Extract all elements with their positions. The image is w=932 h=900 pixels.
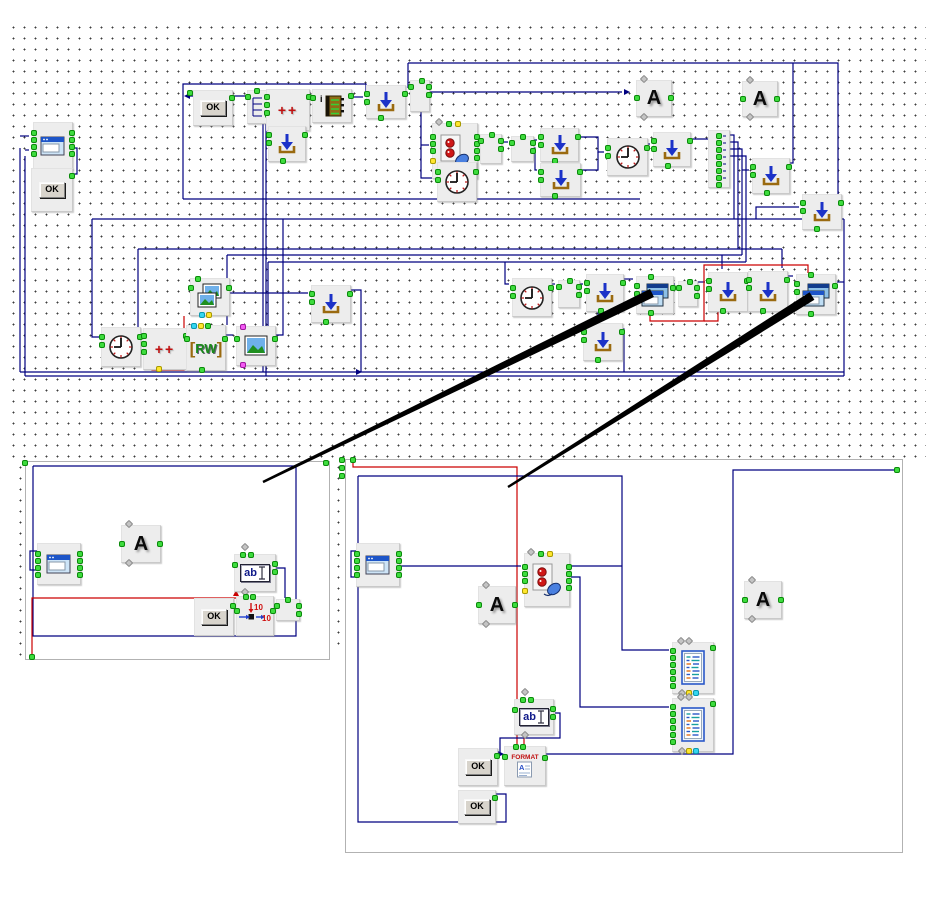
connection-port[interactable]: [716, 161, 722, 167]
connection-port[interactable]: [760, 308, 766, 314]
image-node[interactable]: [236, 326, 276, 366]
connection-port[interactable]: [670, 739, 676, 745]
connection-port[interactable]: [240, 552, 246, 558]
connection-port[interactable]: [243, 594, 249, 600]
wire-segment: [704, 311, 718, 321]
connection-port[interactable]: [323, 319, 329, 325]
connection-port[interactable]: [99, 342, 105, 348]
connection-port[interactable]: [676, 285, 682, 291]
connection-port[interactable]: [716, 147, 722, 153]
connection-port[interactable]: [245, 94, 251, 100]
wire-segment: [577, 137, 604, 152]
wire-segment: [579, 152, 598, 170]
sd2-letter-a-node-1[interactable]: A: [478, 586, 516, 624]
connection-port[interactable]: [686, 748, 692, 754]
svg-text:10: 10: [262, 614, 271, 623]
ok-button[interactable]: OK: [39, 182, 65, 198]
connection-port[interactable]: [670, 648, 676, 654]
connection-port[interactable]: [396, 572, 402, 578]
connection-port[interactable]: [419, 78, 425, 84]
window-icon: [39, 134, 67, 158]
connection-port[interactable]: [648, 310, 654, 316]
document-list-icon: [678, 706, 708, 744]
connection-port[interactable]: [99, 334, 105, 340]
connection-port[interactable]: [581, 329, 587, 335]
connection-port[interactable]: [530, 140, 536, 146]
clock-node-4[interactable]: [101, 327, 141, 367]
connection-port[interactable]: [694, 293, 700, 299]
connection-port[interactable]: [800, 200, 806, 206]
download-node-8[interactable]: [586, 274, 624, 312]
connection-port[interactable]: [348, 93, 354, 99]
connection-port[interactable]: [430, 141, 436, 147]
connection-port[interactable]: [226, 285, 232, 291]
connection-port[interactable]: [446, 121, 452, 127]
connection-port[interactable]: [302, 132, 308, 138]
sd2-textbox-node[interactable]: ab: [514, 699, 554, 735]
connection-port[interactable]: [264, 102, 270, 108]
connection-port[interactable]: [648, 274, 654, 280]
download-icon: [659, 137, 685, 163]
connection-port[interactable]: [687, 279, 693, 285]
letter-a-node-2[interactable]: A: [742, 81, 778, 117]
connection-port[interactable]: [430, 158, 436, 164]
connection-port[interactable]: [141, 341, 147, 347]
textbox-icon: ab: [519, 708, 549, 726]
increment-node-2[interactable]: ++: [143, 328, 187, 370]
connection-port[interactable]: [266, 140, 272, 146]
connection-port[interactable]: [266, 132, 272, 138]
connection-port[interactable]: [309, 299, 315, 305]
connection-port[interactable]: [31, 137, 37, 143]
connection-port[interactable]: [665, 163, 671, 169]
connection-port[interactable]: [687, 138, 693, 144]
connection-port[interactable]: [408, 84, 414, 90]
window-cascade-node-2[interactable]: [796, 274, 836, 315]
junction-node-4[interactable]: [511, 136, 534, 162]
connection-port[interactable]: [567, 278, 573, 284]
connection-port[interactable]: [69, 137, 75, 143]
connection-port[interactable]: [694, 285, 700, 291]
connection-port[interactable]: [502, 754, 508, 760]
download-node-6[interactable]: [752, 158, 790, 194]
connection-port[interactable]: [510, 285, 516, 291]
connection-port[interactable]: [35, 558, 41, 564]
connection-port[interactable]: [69, 130, 75, 136]
connection-port[interactable]: [141, 349, 147, 355]
connection-port[interactable]: [716, 133, 722, 139]
connection-port[interactable]: [229, 95, 235, 101]
connection-port[interactable]: [347, 291, 353, 297]
sd1-letter-a-node[interactable]: A: [121, 525, 161, 563]
connection-port[interactable]: [31, 151, 37, 157]
connection-port[interactable]: [435, 177, 441, 183]
connection-port[interactable]: [784, 277, 790, 283]
connection-port[interactable]: [396, 565, 402, 571]
connection-port[interactable]: [670, 662, 676, 668]
connection-port[interactable]: [378, 115, 384, 121]
sd2-event-node[interactable]: [524, 553, 570, 607]
move-resize-icon: 1010: [238, 601, 272, 631]
download-node-11[interactable]: [748, 271, 788, 312]
connection-port[interactable]: [547, 551, 553, 557]
connection-port[interactable]: [199, 312, 205, 318]
connection-port[interactable]: [156, 366, 162, 372]
connection-port[interactable]: [670, 655, 676, 661]
sd1-window-node[interactable]: [37, 543, 81, 585]
connection-port[interactable]: [234, 608, 240, 614]
connection-port[interactable]: [556, 284, 562, 290]
connection-port[interactable]: [296, 611, 302, 617]
connection-port[interactable]: [520, 744, 526, 750]
connection-port[interactable]: [786, 164, 792, 170]
connection-port[interactable]: [706, 278, 712, 284]
connection-port[interactable]: [512, 707, 518, 713]
download-node-7[interactable]: [802, 194, 842, 230]
connection-port[interactable]: [31, 130, 37, 136]
clock-icon: [106, 332, 136, 362]
connection-port[interactable]: [548, 285, 554, 291]
clock-icon: [517, 283, 547, 313]
connection-port[interactable]: [522, 564, 528, 570]
connection-port[interactable]: [272, 561, 278, 567]
connection-port[interactable]: [670, 732, 676, 738]
connection-port[interactable]: [430, 134, 436, 140]
connection-port[interactable]: [77, 572, 83, 578]
connection-port[interactable]: [742, 597, 748, 603]
connection-port[interactable]: [528, 697, 534, 703]
connection-port[interactable]: [566, 578, 572, 584]
sd2-ok-node-2[interactable]: OK: [458, 790, 496, 824]
wire-arrowhead: [624, 89, 630, 95]
connection-port[interactable]: [584, 280, 590, 286]
connection-port[interactable]: [538, 169, 544, 175]
connection-port[interactable]: [644, 145, 650, 151]
connection-port[interactable]: [309, 291, 315, 297]
connection-port[interactable]: [250, 594, 256, 600]
connection-port[interactable]: [402, 91, 408, 97]
download-icon: [590, 329, 616, 355]
connection-port[interactable]: [634, 291, 640, 297]
connection-port[interactable]: [750, 172, 756, 178]
connection-port[interactable]: [513, 744, 519, 750]
download-node-5[interactable]: [653, 132, 691, 167]
connection-port[interactable]: [832, 283, 838, 289]
connection-port[interactable]: [651, 146, 657, 152]
clock-node-1[interactable]: [437, 162, 477, 202]
ok-button[interactable]: OK: [464, 799, 490, 815]
connection-port[interactable]: [808, 311, 814, 317]
connection-port[interactable]: [520, 134, 526, 140]
connection-port[interactable]: [595, 357, 601, 363]
connection-port[interactable]: [716, 175, 722, 181]
connection-port[interactable]: [716, 154, 722, 160]
format-icon: FORMATA: [511, 754, 538, 779]
connection-port[interactable]: [199, 367, 205, 373]
connection-port[interactable]: [364, 91, 370, 97]
connection-port[interactable]: [716, 140, 722, 146]
connection-port[interactable]: [634, 283, 640, 289]
connection-port[interactable]: [77, 551, 83, 557]
connection-port[interactable]: [354, 565, 360, 571]
connection-port[interactable]: [581, 337, 587, 343]
sd2-doclist-node-1[interactable]: [672, 642, 714, 694]
connection-port[interactable]: [205, 323, 211, 329]
connection-port[interactable]: [455, 121, 461, 127]
connection-port[interactable]: [264, 94, 270, 100]
connection-port[interactable]: [354, 572, 360, 578]
connection-port[interactable]: [494, 753, 500, 759]
connection-port[interactable]: [69, 151, 75, 157]
junction-node-3[interactable]: [480, 134, 502, 164]
window-node-1[interactable]: [33, 122, 73, 170]
connection-port[interactable]: [794, 289, 800, 295]
connection-port[interactable]: [188, 285, 194, 291]
connection-port[interactable]: [248, 552, 254, 558]
download-node-2[interactable]: [366, 85, 406, 119]
connection-port[interactable]: [670, 683, 676, 689]
sd1-textbox-node[interactable]: ab: [234, 554, 276, 592]
connection-port[interactable]: [184, 336, 190, 342]
read-write-icon: [RW]: [190, 340, 223, 357]
junction-node-6[interactable]: [678, 281, 698, 307]
connection-port[interactable]: [234, 336, 240, 342]
listbox-icon: i: [319, 93, 345, 119]
connection-port[interactable]: [285, 597, 291, 603]
connection-port[interactable]: [716, 168, 722, 174]
connection-port[interactable]: [77, 565, 83, 571]
sd1-junction-node[interactable]: [276, 599, 300, 621]
connection-port[interactable]: [489, 132, 495, 138]
connection-port[interactable]: [232, 562, 238, 568]
connection-dot: [29, 654, 35, 660]
connection-port[interactable]: [498, 138, 504, 144]
letter-a-node-1[interactable]: A: [636, 80, 672, 117]
download-icon: [592, 280, 618, 306]
connection-port[interactable]: [550, 714, 556, 720]
connection-port[interactable]: [710, 701, 716, 707]
connection-port[interactable]: [670, 669, 676, 675]
connection-port[interactable]: [310, 95, 316, 101]
connection-port[interactable]: [396, 558, 402, 564]
connection-port[interactable]: [619, 329, 625, 335]
connection-port[interactable]: [195, 276, 201, 282]
listbox-node-1[interactable]: i: [312, 89, 352, 123]
junction-node-2[interactable]: [410, 80, 430, 112]
connection-port[interactable]: [538, 134, 544, 140]
connection-port[interactable]: [764, 190, 770, 196]
connection-port[interactable]: [605, 153, 611, 159]
ok-button[interactable]: OK: [465, 759, 491, 775]
sd2-ok-node-1[interactable]: OK: [458, 748, 498, 786]
connection-port[interactable]: [720, 308, 726, 314]
connection-port[interactable]: [605, 145, 611, 151]
connection-port[interactable]: [794, 281, 800, 287]
connection-port[interactable]: [512, 602, 518, 608]
image-icon: [242, 333, 270, 359]
connection-port[interactable]: [598, 308, 604, 314]
connection-port[interactable]: [670, 704, 676, 710]
connection-port[interactable]: [566, 585, 572, 591]
connection-port[interactable]: [800, 208, 806, 214]
clock-icon: [442, 167, 472, 197]
connection-port[interactable]: [426, 92, 432, 98]
connection-port[interactable]: [35, 572, 41, 578]
connection-port[interactable]: [668, 95, 674, 101]
ok-button[interactable]: OK: [200, 100, 226, 116]
connection-port[interactable]: [584, 288, 590, 294]
connection-port[interactable]: [670, 676, 676, 682]
junction-node-5[interactable]: [558, 280, 580, 308]
download-node-4[interactable]: [540, 163, 581, 197]
ok-node-2[interactable]: OK: [193, 90, 233, 126]
wire-segment: [756, 207, 799, 219]
sd2-letter-a-node-2[interactable]: A: [744, 581, 782, 619]
connection-port[interactable]: [119, 541, 125, 547]
mux-bar-node[interactable]: [708, 130, 730, 188]
download-node-3[interactable]: [540, 128, 579, 162]
connection-port[interactable]: [538, 177, 544, 183]
connection-port[interactable]: [222, 336, 228, 342]
download-icon: [755, 279, 781, 305]
wire-segment: [92, 219, 101, 337]
connection-port[interactable]: [670, 725, 676, 731]
connection-port[interactable]: [522, 578, 528, 584]
connection-port[interactable]: [354, 551, 360, 557]
download-node-10[interactable]: [708, 272, 748, 312]
wire-segment: [788, 63, 793, 163]
download-node-12[interactable]: [311, 285, 351, 323]
connection-port[interactable]: [550, 706, 556, 712]
connection-port[interactable]: [473, 169, 479, 175]
connection-port[interactable]: [740, 96, 746, 102]
connection-port[interactable]: [510, 293, 516, 299]
connection-port[interactable]: [746, 285, 752, 291]
connection-port[interactable]: [198, 323, 204, 329]
connection-port[interactable]: [478, 138, 484, 144]
sd1-ok-node[interactable]: OK: [194, 598, 234, 636]
connection-port[interactable]: [498, 146, 504, 152]
connection-port[interactable]: [538, 142, 544, 148]
connection-port[interactable]: [69, 144, 75, 150]
sd1-move-node[interactable]: 1010: [236, 596, 274, 636]
connection-port[interactable]: [435, 169, 441, 175]
connection-port[interactable]: [542, 755, 548, 761]
sd2-window-node[interactable]: [356, 543, 400, 587]
window-cascade-node-1[interactable]: [636, 276, 674, 314]
connection-port[interactable]: [566, 571, 572, 577]
connection-port[interactable]: [240, 362, 246, 368]
connection-port[interactable]: [566, 564, 572, 570]
connection-port[interactable]: [706, 286, 712, 292]
connection-port[interactable]: [272, 569, 278, 575]
connection-port[interactable]: [651, 138, 657, 144]
download-node-1[interactable]: [268, 126, 306, 162]
connection-port[interactable]: [476, 602, 482, 608]
connection-port[interactable]: [808, 272, 814, 278]
images-node[interactable]: [190, 278, 230, 316]
clock-node-3[interactable]: [512, 278, 552, 317]
sd2-doclist-node-2[interactable]: [672, 698, 714, 752]
connection-port[interactable]: [634, 95, 640, 101]
clock-node-2[interactable]: [607, 138, 648, 176]
document-list-icon: [678, 649, 708, 687]
connection-port[interactable]: [710, 645, 716, 651]
connection-port[interactable]: [35, 565, 41, 571]
connection-port[interactable]: [670, 718, 676, 724]
connection-port[interactable]: [814, 226, 820, 232]
connection-port[interactable]: [509, 140, 515, 146]
download-icon: [809, 199, 835, 225]
sd2-format-node[interactable]: FORMATA: [504, 746, 546, 786]
connection-port[interactable]: [522, 588, 528, 594]
connection-port[interactable]: [522, 571, 528, 577]
wire-segment: [571, 577, 669, 707]
connection-port[interactable]: [77, 558, 83, 564]
connection-port[interactable]: [396, 551, 402, 557]
connection-port[interactable]: [426, 84, 432, 90]
connection-port[interactable]: [264, 110, 270, 116]
connection-port[interactable]: [530, 148, 536, 154]
ok-button[interactable]: OK: [201, 609, 227, 625]
connection-port[interactable]: [296, 603, 302, 609]
connection-port[interactable]: [492, 795, 498, 801]
connection-port[interactable]: [838, 200, 844, 206]
connection-port[interactable]: [774, 96, 780, 102]
svg-text:10: 10: [254, 603, 263, 612]
connection-port[interactable]: [620, 280, 626, 286]
download-icon: [547, 132, 573, 158]
connection-port[interactable]: [364, 99, 370, 105]
connection-port[interactable]: [191, 323, 197, 329]
connection-port[interactable]: [670, 711, 676, 717]
connection-port[interactable]: [157, 541, 163, 547]
connection-port[interactable]: [693, 748, 699, 754]
block-diagram-canvas[interactable]: OKOK++iAA++[RW]AabOK1010AAabFORMATAOKOK: [0, 0, 932, 900]
connection-port[interactable]: [778, 597, 784, 603]
connection-port[interactable]: [430, 148, 436, 154]
connection-port[interactable]: [280, 158, 286, 164]
connection-port[interactable]: [746, 277, 752, 283]
connection-port[interactable]: [576, 284, 582, 290]
connection-port[interactable]: [538, 551, 544, 557]
download-node-9[interactable]: [583, 323, 623, 361]
connection-dot: [187, 90, 193, 96]
ok-node-1[interactable]: OK: [31, 168, 73, 212]
connection-port[interactable]: [576, 292, 582, 298]
connection-port[interactable]: [141, 333, 147, 339]
connection-port[interactable]: [693, 690, 699, 696]
cascade-windows-icon: [640, 282, 670, 308]
connection-port[interactable]: [31, 144, 37, 150]
connection-port[interactable]: [69, 173, 75, 179]
connection-port[interactable]: [274, 603, 280, 609]
connection-port[interactable]: [575, 134, 581, 140]
connection-port[interactable]: [750, 164, 756, 170]
connection-port[interactable]: [552, 193, 558, 199]
connection-port[interactable]: [272, 336, 278, 342]
readwrite-node[interactable]: [RW]: [186, 325, 226, 371]
increment-node-1[interactable]: ++: [266, 89, 310, 131]
connection-port[interactable]: [35, 551, 41, 557]
connection-port[interactable]: [520, 697, 526, 703]
connection-port[interactable]: [206, 312, 212, 318]
connection-port[interactable]: [716, 182, 722, 188]
connection-port[interactable]: [577, 169, 583, 175]
connection-port[interactable]: [354, 558, 360, 564]
connection-port[interactable]: [240, 324, 246, 330]
connection-port[interactable]: [254, 88, 260, 94]
